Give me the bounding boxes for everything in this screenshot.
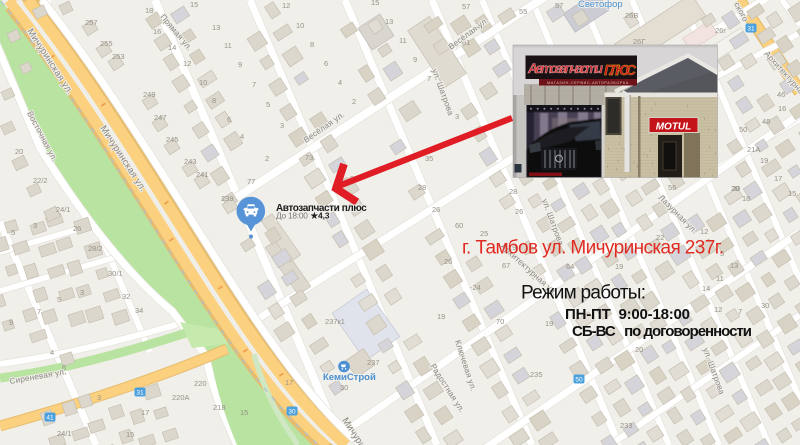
svg-text:247: 247 [154, 113, 167, 122]
svg-text:16: 16 [778, 104, 786, 113]
svg-text:★4,3: ★4,3 [311, 211, 330, 221]
svg-text:46: 46 [777, 90, 785, 99]
svg-text:48: 48 [762, 117, 770, 126]
svg-text:24/1: 24/1 [57, 429, 72, 438]
svg-text:235: 235 [530, 370, 543, 379]
svg-text:30/1: 30/1 [108, 269, 123, 278]
svg-text:26: 26 [73, 224, 81, 233]
svg-text:237: 237 [367, 358, 380, 367]
svg-text:243: 243 [184, 157, 197, 166]
svg-text:15: 15 [371, 0, 379, 7]
svg-text:ПН-ПТ 9:00-18:00: ПН-ПТ 9:00-18:00 [565, 306, 690, 323]
svg-text:30: 30 [340, 383, 348, 392]
svg-text:Режим работы:: Режим работы: [521, 283, 646, 304]
svg-text:7: 7 [427, 74, 431, 83]
svg-text:11: 11 [399, 36, 407, 45]
svg-text:12: 12 [282, 1, 290, 10]
svg-text:32: 32 [122, 292, 130, 301]
svg-text:28: 28 [509, 187, 517, 196]
svg-text:21А: 21А [747, 145, 760, 154]
svg-text:218: 218 [213, 403, 226, 412]
svg-text:19: 19 [760, 156, 768, 165]
svg-text:До 18:00: До 18:00 [276, 211, 308, 221]
svg-text:26: 26 [515, 207, 523, 216]
svg-text:19: 19 [437, 312, 445, 321]
svg-text:50: 50 [739, 125, 747, 134]
svg-text:20: 20 [731, 184, 739, 193]
svg-text:19: 19 [545, 319, 553, 328]
svg-text:73: 73 [305, 153, 313, 162]
svg-text:3: 3 [280, 121, 284, 130]
svg-text:9: 9 [413, 55, 417, 64]
svg-text:24/1: 24/1 [56, 205, 71, 214]
svg-text:67: 67 [502, 261, 510, 270]
svg-text:18: 18 [145, 6, 153, 15]
svg-text:31: 31 [136, 390, 144, 397]
svg-text:10: 10 [296, 21, 304, 30]
svg-text:26г: 26г [715, 26, 726, 35]
svg-text:9: 9 [9, 318, 13, 327]
svg-text:8: 8 [310, 40, 314, 49]
svg-text:28/2: 28/2 [88, 244, 103, 253]
svg-text:245: 245 [166, 135, 179, 144]
svg-text:г. Тамбов ул. Мичуринская 237г: г. Тамбов ул. Мичуринская 237г. [462, 238, 724, 259]
svg-text:60: 60 [455, 221, 463, 230]
svg-text:7: 7 [37, 307, 41, 316]
svg-text:5: 5 [57, 295, 61, 304]
svg-text:КемиСтрой: КемиСтрой [323, 372, 376, 383]
svg-text:6: 6 [227, 115, 231, 124]
svg-text:11: 11 [716, 274, 724, 283]
svg-text:3: 3 [97, 393, 101, 402]
svg-text:12: 12 [700, 227, 708, 236]
svg-text:ПЛЮС: ПЛЮС [604, 63, 637, 79]
svg-text:5: 5 [11, 228, 15, 237]
svg-text:17: 17 [141, 408, 149, 417]
svg-text:-24: -24 [470, 283, 481, 292]
svg-text:34: 34 [135, 306, 143, 315]
svg-text:241: 241 [196, 170, 209, 179]
svg-text:9: 9 [238, 60, 242, 69]
svg-text:64: 64 [566, 262, 574, 271]
svg-text:30: 30 [288, 409, 296, 416]
svg-text:22/2: 22/2 [33, 176, 48, 185]
svg-text:56: 56 [668, 183, 676, 192]
svg-text:20: 20 [15, 147, 23, 156]
svg-text:12: 12 [183, 59, 191, 68]
svg-text:13: 13 [385, 17, 393, 26]
svg-text:СБ-ВС по договоренности: СБ-ВС по договоренности [572, 323, 752, 340]
svg-text:MOTUL: MOTUL [656, 122, 692, 133]
svg-text:30: 30 [761, 301, 769, 310]
svg-text:35: 35 [425, 154, 433, 163]
svg-text:14: 14 [168, 43, 176, 52]
svg-text:5: 5 [266, 100, 270, 109]
svg-text:13: 13 [730, 261, 738, 270]
svg-text:6: 6 [324, 59, 328, 68]
svg-text:257: 257 [85, 18, 98, 27]
svg-text:70: 70 [496, 317, 504, 326]
svg-text:3: 3 [80, 288, 84, 297]
svg-text:17: 17 [285, 378, 293, 387]
svg-text:41: 41 [46, 415, 54, 422]
svg-text:233: 233 [620, 421, 633, 430]
svg-text:10: 10 [199, 78, 207, 87]
svg-text:253: 253 [112, 52, 125, 61]
svg-text:239: 239 [221, 194, 234, 203]
svg-text:2: 2 [265, 154, 269, 163]
svg-text:2: 2 [352, 97, 356, 106]
svg-text:28: 28 [418, 183, 426, 192]
svg-text:55: 55 [519, 7, 527, 16]
svg-text:15: 15 [240, 408, 248, 417]
svg-text:12: 12 [714, 305, 722, 314]
svg-text:8: 8 [212, 96, 216, 105]
svg-text:26В: 26В [625, 11, 638, 20]
svg-text:4: 4 [240, 132, 244, 141]
svg-text:57: 57 [462, 2, 470, 11]
svg-text:15: 15 [190, 0, 198, 9]
svg-text:77: 77 [247, 177, 255, 186]
svg-text:220: 220 [194, 379, 207, 388]
svg-text:16: 16 [153, 27, 161, 36]
svg-text:18: 18 [742, 194, 750, 203]
svg-text:249: 249 [143, 90, 156, 99]
svg-text:237к1: 237к1 [325, 317, 345, 326]
svg-text:3: 3 [33, 221, 37, 230]
svg-text:220А: 220А [172, 393, 190, 402]
svg-text:17: 17 [774, 174, 782, 183]
svg-text:13: 13 [212, 23, 220, 32]
svg-text:Светофор: Светофор [578, 0, 623, 10]
svg-text:14: 14 [702, 284, 710, 293]
svg-text:26: 26 [432, 205, 440, 214]
svg-text:МАГАЗИН-СЕРВИС-АВТОРАЗБОРКА: МАГАЗИН-СЕРВИС-АВТОРАЗБОРКА [547, 81, 629, 85]
svg-text:11: 11 [224, 41, 232, 50]
svg-text:7: 7 [252, 80, 256, 89]
svg-text:57: 57 [555, 1, 563, 10]
svg-text:4: 4 [338, 78, 342, 87]
svg-text:7: 7 [738, 307, 742, 316]
svg-text:4: 4 [50, 348, 54, 357]
svg-text:15: 15 [788, 189, 796, 198]
svg-text:20: 20 [635, 345, 643, 354]
svg-text:26: 26 [444, 257, 452, 266]
svg-text:19: 19 [615, 262, 623, 271]
svg-text:15: 15 [126, 430, 134, 439]
svg-text:50: 50 [575, 377, 583, 384]
svg-text:31: 31 [747, 26, 755, 33]
svg-text:255: 255 [100, 39, 113, 48]
svg-text:Автозапчасти: Автозапчасти [527, 61, 604, 76]
